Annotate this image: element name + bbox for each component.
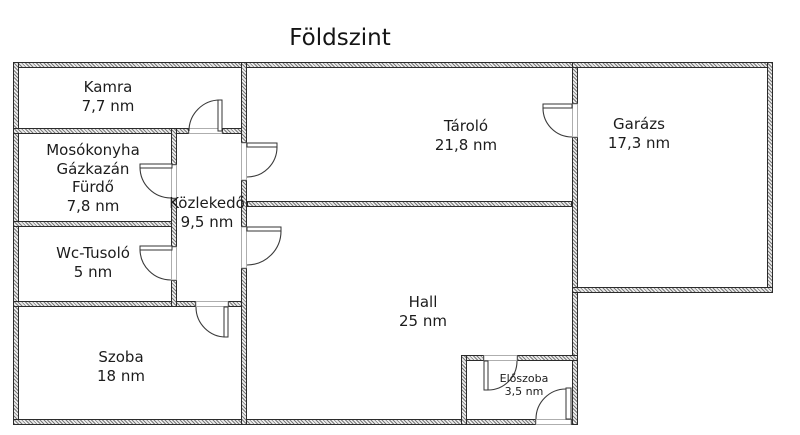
door-mosokonyha [140,164,176,198]
room-name: Előszoba [500,372,549,385]
room-area: 25 nm [399,312,447,330]
room-name: Gázkazán [57,160,130,178]
room-name: Tároló [444,117,488,135]
wall-eloszoba-top-b [517,355,578,361]
wall-garage-right [767,62,773,293]
wall-eloszoba-left [461,355,467,425]
wall-top-main [13,62,578,68]
room-label-mosokonyha: Mosókonyha Gázkazán Fürdő 7,8 nm [46,141,140,215]
room-name: Mosókonyha [46,141,140,159]
room-label-garazs: Garázs 17,3 nm [608,115,670,152]
wall-right-lower [572,137,578,425]
wall-garage-bottom [572,287,773,293]
room-label-szoba: Szoba 18 nm [97,348,145,385]
room-name: Kamra [84,78,133,96]
room-name: Garázs [613,115,665,133]
wall-moso-wc [13,221,177,227]
room-label-tarolo: Tároló 21,8 nm [435,117,497,154]
room-area: 21,8 nm [435,136,497,154]
floor-plan-title: Földszint [289,25,391,51]
door-garazs [543,104,577,137]
room-name: Wc-Tusoló [56,244,130,262]
wall-szoba-top-a [13,301,196,307]
room-area: 3,5 nm [505,385,544,398]
wall-kozlekedo-left-a [171,128,177,165]
room-label-kozlekedo: Közlekedő 9,5 nm [169,194,245,231]
wall-center-vert-a [241,62,247,143]
wall-kamra-bottom-a [13,128,189,134]
door-hall [242,227,281,268]
room-name: Szoba [98,348,143,366]
room-area: 17,3 nm [608,134,670,152]
wall-center-vert-c [241,268,247,425]
wall-tarolo-hall [247,201,572,207]
room-name: Hall [409,293,438,311]
wall-kozlekedo-left-c [171,280,177,307]
room-name: Közlekedő [169,194,245,212]
room-label-wc-tusolo: Wc-Tusoló 5 nm [56,244,130,281]
room-label-kamra: Kamra 7,7 nm [82,78,135,115]
wall-bottom-left [13,419,536,425]
room-area: 7,8 nm [67,197,120,215]
door-kamra [189,100,222,133]
room-label-hall: Hall 25 nm [399,293,447,330]
door-tarolo [242,143,277,180]
room-label-eloszoba: Előszoba 3,5 nm [500,372,549,398]
door-wc-tusolo [140,246,176,280]
wall-left-main [13,62,19,425]
wall-right-upper [572,62,578,104]
room-area: 7,7 nm [82,97,135,115]
room-area: 9,5 nm [181,213,234,231]
door-szoba [196,302,228,337]
wall-garage-top [572,62,773,68]
room-area: 5 nm [74,263,112,281]
floor-plan: Földszint [0,0,800,435]
room-name: Fürdő [72,178,114,196]
room-area: 18 nm [97,367,145,385]
